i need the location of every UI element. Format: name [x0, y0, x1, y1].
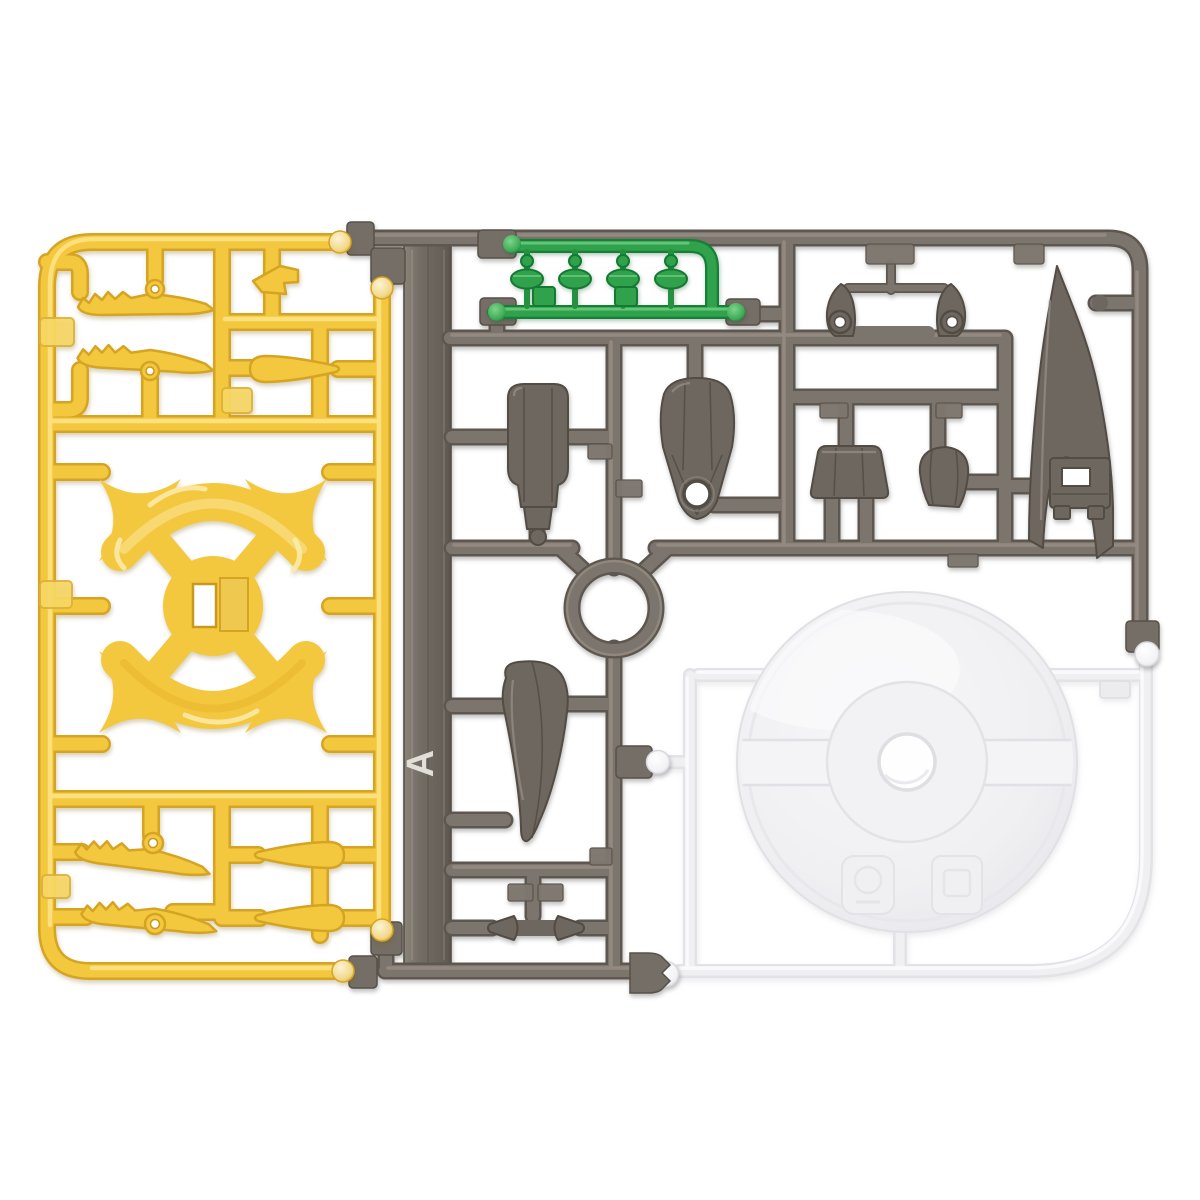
green-ball-joint-left: [488, 303, 506, 321]
trapezoid-segment: [811, 446, 888, 498]
green-gate-tab-2: [615, 287, 637, 306]
horn-bracket: [1050, 458, 1110, 519]
embossed-logo-mark-right: [932, 856, 982, 914]
sprue-photo: A: [0, 0, 1200, 1200]
clear-ball-joint-right: [1135, 642, 1159, 666]
large-curved-horn: [1029, 266, 1113, 558]
serrated-wing-blade-upper-1: [78, 292, 214, 315]
gray-runner: A: [347, 222, 1159, 993]
clear-runner: [668, 592, 1146, 971]
small-crest-fin: [253, 266, 298, 294]
runner-plate-letter: A: [400, 749, 442, 777]
tail-spike-lower-2: [255, 905, 344, 931]
green-ball-joint-right: [727, 303, 745, 321]
sprue-photo-canvas: A: [0, 0, 1200, 1200]
gray-label-plate-bar: A: [400, 240, 451, 969]
tail-spike-lower-1: [255, 842, 344, 868]
green-runner: [488, 235, 745, 321]
yellow-runner: [40, 231, 393, 982]
clear-gate-tab: [1100, 681, 1130, 698]
curved-fang: [503, 661, 568, 841]
green-ball-joint-top: [503, 235, 521, 253]
clear-ball-joint-left: [647, 751, 670, 774]
dome-segment: [920, 447, 968, 507]
green-joint-pegs: [511, 255, 687, 289]
green-gate-tab-1: [533, 287, 555, 306]
rounded-shell-segment: [508, 384, 568, 545]
display-base-disc: [720, 592, 1084, 932]
embossed-logo-mark-left: [842, 856, 894, 914]
hub-square-boss: [220, 578, 248, 631]
hub-square-hole: [193, 584, 216, 627]
